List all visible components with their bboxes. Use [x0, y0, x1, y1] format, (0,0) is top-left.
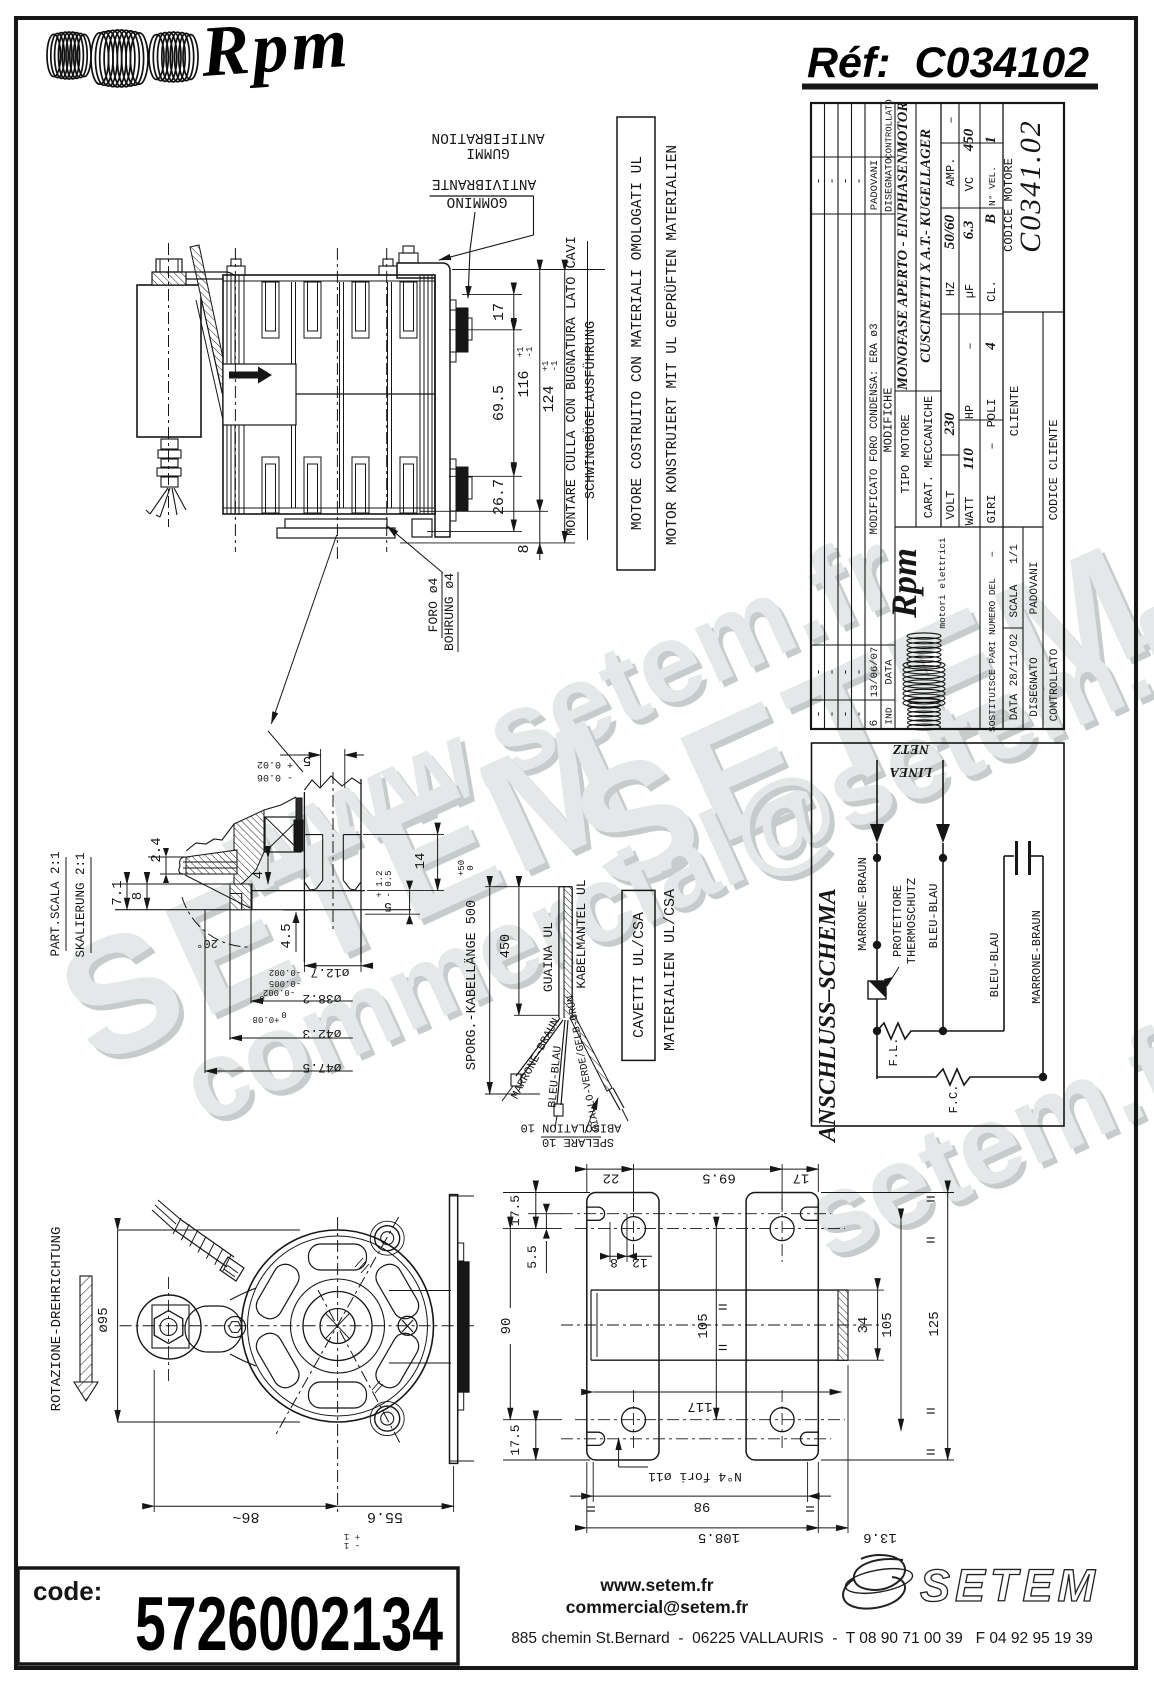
svg-text:DATA: DATA: [1009, 693, 1021, 720]
svg-text:F.C.: F.C.: [947, 1085, 961, 1114]
svg-text:6.3: 6.3: [961, 220, 977, 239]
svg-text:PROTETTORE: PROTETTORE: [891, 885, 905, 957]
svg-text:CUSCINETTI X A.T.- KUGELLAGER: CUSCINETTI X A.T.- KUGELLAGER: [918, 129, 934, 363]
svg-text:N° VEL.: N° VEL.: [987, 166, 998, 206]
svg-text:SCHWINGBÜGELAUSFÜHRUNG: SCHWINGBÜGELAUSFÜHRUNG: [584, 321, 599, 499]
svg-text:MARRONE-BRAUN: MARRONE-BRAUN: [1030, 910, 1044, 1004]
svg-text:HP: HP: [963, 405, 977, 419]
svg-text:FORO ø4: FORO ø4: [426, 577, 441, 632]
svg-text:SOSTITUISCE PARI NUMERO DEL: SOSTITUISCE PARI NUMERO DEL: [987, 578, 998, 732]
svg-text:–: –: [963, 342, 977, 349]
svg-text:124: 124: [541, 385, 558, 412]
svg-text:-: -: [812, 177, 826, 184]
svg-text:Rpm: Rpm: [884, 548, 924, 619]
svg-text:BOHRUNG ø4: BOHRUNG ø4: [442, 573, 457, 651]
svg-text:116: 116: [516, 370, 533, 397]
svg-text:69.5: 69.5: [702, 1170, 736, 1186]
svg-text:5726002134: 5726002134: [135, 1582, 443, 1667]
svg-text:0: 0: [466, 865, 476, 870]
svg-text:0: 0: [281, 1009, 286, 1019]
svg-text:-0.002: -0.002: [263, 987, 295, 997]
svg-text:50/60: 50/60: [942, 214, 958, 249]
svg-text:SPORG.-KABELLÄNGE 500: SPORG.-KABELLÄNGE 500: [465, 900, 480, 1070]
svg-text:+0.08: +0.08: [252, 1014, 279, 1024]
svg-text:CAVETTI UL/CSA: CAVETTI UL/CSA: [631, 912, 648, 1038]
svg-text:13/06/07: 13/06/07: [869, 647, 881, 697]
svg-text:14: 14: [413, 853, 429, 870]
svg-text:-: -: [839, 668, 853, 675]
svg-text:CARAT. MECCANICHE: CARAT. MECCANICHE: [922, 396, 936, 518]
svg-text:-: -: [812, 668, 826, 675]
svg-text:PADOVANI: PADOVANI: [1029, 562, 1041, 615]
svg-text:-: -: [839, 177, 853, 184]
svg-text:IND: IND: [884, 707, 895, 724]
svg-text:–: –: [944, 116, 958, 123]
svg-text:GUAINA UL: GUAINA UL: [541, 922, 556, 992]
svg-text:+ 1: + 1: [344, 1531, 360, 1541]
svg-text:C0341.02: C0341.02: [1014, 119, 1047, 253]
svg-text:-: -: [839, 710, 853, 717]
svg-text:CONTROLLATO: CONTROLLATO: [1049, 648, 1061, 721]
svg-text:www.setem.fr: www.setem.fr: [599, 1575, 713, 1595]
svg-text:20°: 20°: [196, 936, 218, 950]
svg-text:F.L.: F.L.: [887, 1038, 901, 1067]
svg-text:69.5: 69.5: [491, 385, 508, 421]
svg-text:-: -: [825, 177, 839, 184]
svg-text:13.6: 13.6: [863, 1529, 897, 1545]
svg-text:ANTIFIBRATION: ANTIFIBRATION: [431, 129, 544, 145]
svg-text:PADOVANI: PADOVANI: [869, 160, 881, 210]
svg-text:-: -: [852, 668, 866, 675]
svg-text:ø12.7: ø12.7: [310, 965, 349, 980]
svg-text:8: 8: [610, 1255, 618, 1270]
svg-text:- 1: - 1: [344, 1540, 360, 1550]
svg-text:-0.002: -0.002: [269, 967, 301, 977]
svg-text:105: 105: [880, 1312, 896, 1337]
svg-text:230: 230: [942, 412, 958, 436]
svg-text:MOTORE COSTRUITO CON MATERIALI: MOTORE COSTRUITO CON MATERIALI OMOLOGATI…: [630, 156, 646, 530]
svg-text:LINEA: LINEA: [890, 764, 934, 779]
svg-text:CL.: CL.: [985, 280, 999, 302]
svg-text:-: -: [852, 177, 866, 184]
svg-text:motori elettrici: motori elettrici: [937, 537, 948, 629]
svg-text:GIRI: GIRI: [985, 495, 999, 524]
svg-text:108.5: 108.5: [698, 1529, 740, 1545]
svg-text:SCALA: SCALA: [1009, 584, 1021, 617]
svg-text:B: B: [983, 214, 999, 225]
svg-text:ø47.5: ø47.5: [302, 1060, 341, 1075]
svg-text:-: -: [825, 668, 839, 675]
svg-text:VOLT: VOLT: [944, 491, 958, 520]
svg-text:98: 98: [694, 1498, 711, 1514]
svg-text:ABISOLATION 10: ABISOLATION 10: [521, 1121, 622, 1135]
svg-text:2.4: 2.4: [149, 837, 165, 862]
svg-text:4.5: 4.5: [279, 923, 295, 948]
svg-text:Rpm: Rpm: [198, 2, 353, 92]
svg-text:VC: VC: [963, 177, 977, 191]
svg-text:1/1: 1/1: [1009, 544, 1021, 564]
svg-text:DATA: DATA: [884, 659, 896, 685]
svg-text:28/11/02: 28/11/02: [1009, 634, 1021, 687]
svg-text:µF: µF: [963, 284, 977, 298]
svg-text:–: –: [985, 442, 999, 449]
svg-text:MARRONE-BRAUN: MARRONE-BRAUN: [856, 857, 870, 951]
svg-text:90: 90: [499, 1318, 515, 1335]
svg-text:ø42.3: ø42.3: [302, 1026, 341, 1041]
svg-text:ANTIVIBRANTE: ANTIVIBRANTE: [432, 175, 536, 191]
svg-text:5.5: 5.5: [525, 1245, 540, 1268]
svg-text:-1: -1: [525, 347, 535, 358]
svg-text:MOTOR KONSTRUIERT MIT UL GEPRÜ: MOTOR KONSTRUIERT MIT UL GEPRÜFTEN MATER…: [663, 145, 681, 545]
svg-text:DISEGNATO: DISEGNATO: [1029, 657, 1041, 717]
svg-text:MODIFICHE: MODIFICHE: [882, 388, 896, 453]
svg-text:- 0.5: - 0.5: [384, 870, 394, 897]
svg-text:105: 105: [696, 1313, 712, 1338]
svg-text:+ 0.02: + 0.02: [257, 758, 293, 769]
svg-text:-: -: [825, 710, 839, 717]
svg-text:ø95: ø95: [96, 1307, 112, 1332]
svg-text:8: 8: [516, 544, 533, 553]
svg-text:MODIFICATO FORO CONDENSA: ERA: MODIFICATO FORO CONDENSA: ERA ø3: [869, 323, 881, 534]
svg-text:Réf: C034102: Réf: C034102: [807, 39, 1089, 87]
svg-text:ANSCHLUSS–SCHEMA: ANSCHLUSS–SCHEMA: [815, 888, 841, 1143]
svg-text:SKALIERUNG 2:1: SKALIERUNG 2:1: [74, 852, 88, 957]
svg-text:MATERIALIEN UL/CSA: MATERIALIEN UL/CSA: [662, 889, 679, 1051]
svg-text:AMP.: AMP.: [944, 158, 958, 187]
svg-text:34: 34: [856, 1317, 872, 1334]
svg-text:CONTROLLATO: CONTROLLATO: [885, 99, 895, 158]
svg-text:HZ: HZ: [944, 282, 958, 296]
svg-text:885 chemin St.Bernard - 0622: 885 chemin St.Bernard - 06225 VALLAURIS …: [511, 1630, 1093, 1647]
svg-text:6: 6: [869, 720, 881, 727]
svg-text:GUMMI: GUMMI: [466, 144, 510, 160]
svg-text:DISEGNATO: DISEGNATO: [885, 158, 896, 212]
svg-text:4: 4: [251, 871, 267, 879]
svg-text:WATT: WATT: [963, 497, 977, 526]
svg-text:-0.005: -0.005: [269, 978, 301, 988]
svg-text:PART.SCALA 2:1: PART.SCALA 2:1: [49, 851, 63, 956]
svg-text:17.5: 17.5: [508, 1195, 523, 1226]
svg-text:TIPO MOTORE: TIPO MOTORE: [899, 414, 913, 493]
svg-text:ROTAZIONE-DREHRICHTUNG: ROTAZIONE-DREHRICHTUNG: [49, 1227, 65, 1412]
svg-text:26.7: 26.7: [491, 479, 508, 515]
svg-text:ø38.2: ø38.2: [302, 991, 341, 1006]
svg-text:450: 450: [961, 128, 977, 152]
svg-text:THERMOSCHUTZ: THERMOSCHUTZ: [905, 878, 919, 964]
svg-text:22: 22: [603, 1170, 620, 1186]
svg-text:NETZ: NETZ: [892, 741, 930, 756]
svg-text:MONOFASE APERTO - EINPHASENMOT: MONOFASE APERTO - EINPHASENMOTOR: [895, 102, 911, 391]
svg-text:-: -: [852, 710, 866, 717]
svg-text:5: 5: [384, 899, 392, 914]
svg-text:117: 117: [687, 1398, 712, 1414]
svg-text:N°4 fori ø11: N°4 fori ø11: [648, 1469, 742, 1484]
svg-text:- 0.06: - 0.06: [257, 771, 293, 782]
svg-text:SETEM: SETEM: [920, 1560, 1100, 1611]
svg-text:BLEU-BLAU: BLEU-BLAU: [988, 933, 1002, 998]
svg-text:55.6: 55.6: [367, 1508, 403, 1525]
svg-text:125: 125: [927, 1311, 943, 1336]
svg-text:17.5: 17.5: [508, 1424, 523, 1455]
svg-text:CODICE CLIENTE: CODICE CLIENTE: [1047, 420, 1061, 521]
svg-text:-1: -1: [550, 361, 560, 372]
svg-text:17: 17: [491, 303, 508, 321]
svg-text:4: 4: [983, 342, 999, 351]
svg-text:CLIENTE: CLIENTE: [1008, 386, 1022, 436]
svg-text:MONTARE CULLA CON BUGNATURA LA: MONTARE CULLA CON BUGNATURA LATO CAVI: [565, 236, 580, 536]
svg-text:BLEU-BLAU: BLEU-BLAU: [927, 884, 941, 949]
svg-text:5: 5: [303, 752, 311, 768]
svg-text:86~: 86~: [232, 1508, 259, 1525]
svg-text:17: 17: [793, 1170, 810, 1186]
svg-text:code:: code:: [33, 1576, 102, 1606]
svg-text:1: 1: [983, 136, 999, 144]
svg-text:8: 8: [130, 892, 146, 900]
svg-text:110: 110: [961, 448, 977, 470]
svg-text:SPELARE 10: SPELARE 10: [542, 1135, 614, 1149]
svg-text:POLI: POLI: [985, 399, 999, 428]
svg-text:–: –: [987, 551, 999, 558]
svg-text:commercial@setem.fr: commercial@setem.fr: [566, 1597, 749, 1617]
svg-text:450: 450: [499, 934, 514, 958]
svg-text:-: -: [812, 710, 826, 717]
svg-text:KABELMANTEL UL: KABELMANTEL UL: [574, 879, 589, 988]
